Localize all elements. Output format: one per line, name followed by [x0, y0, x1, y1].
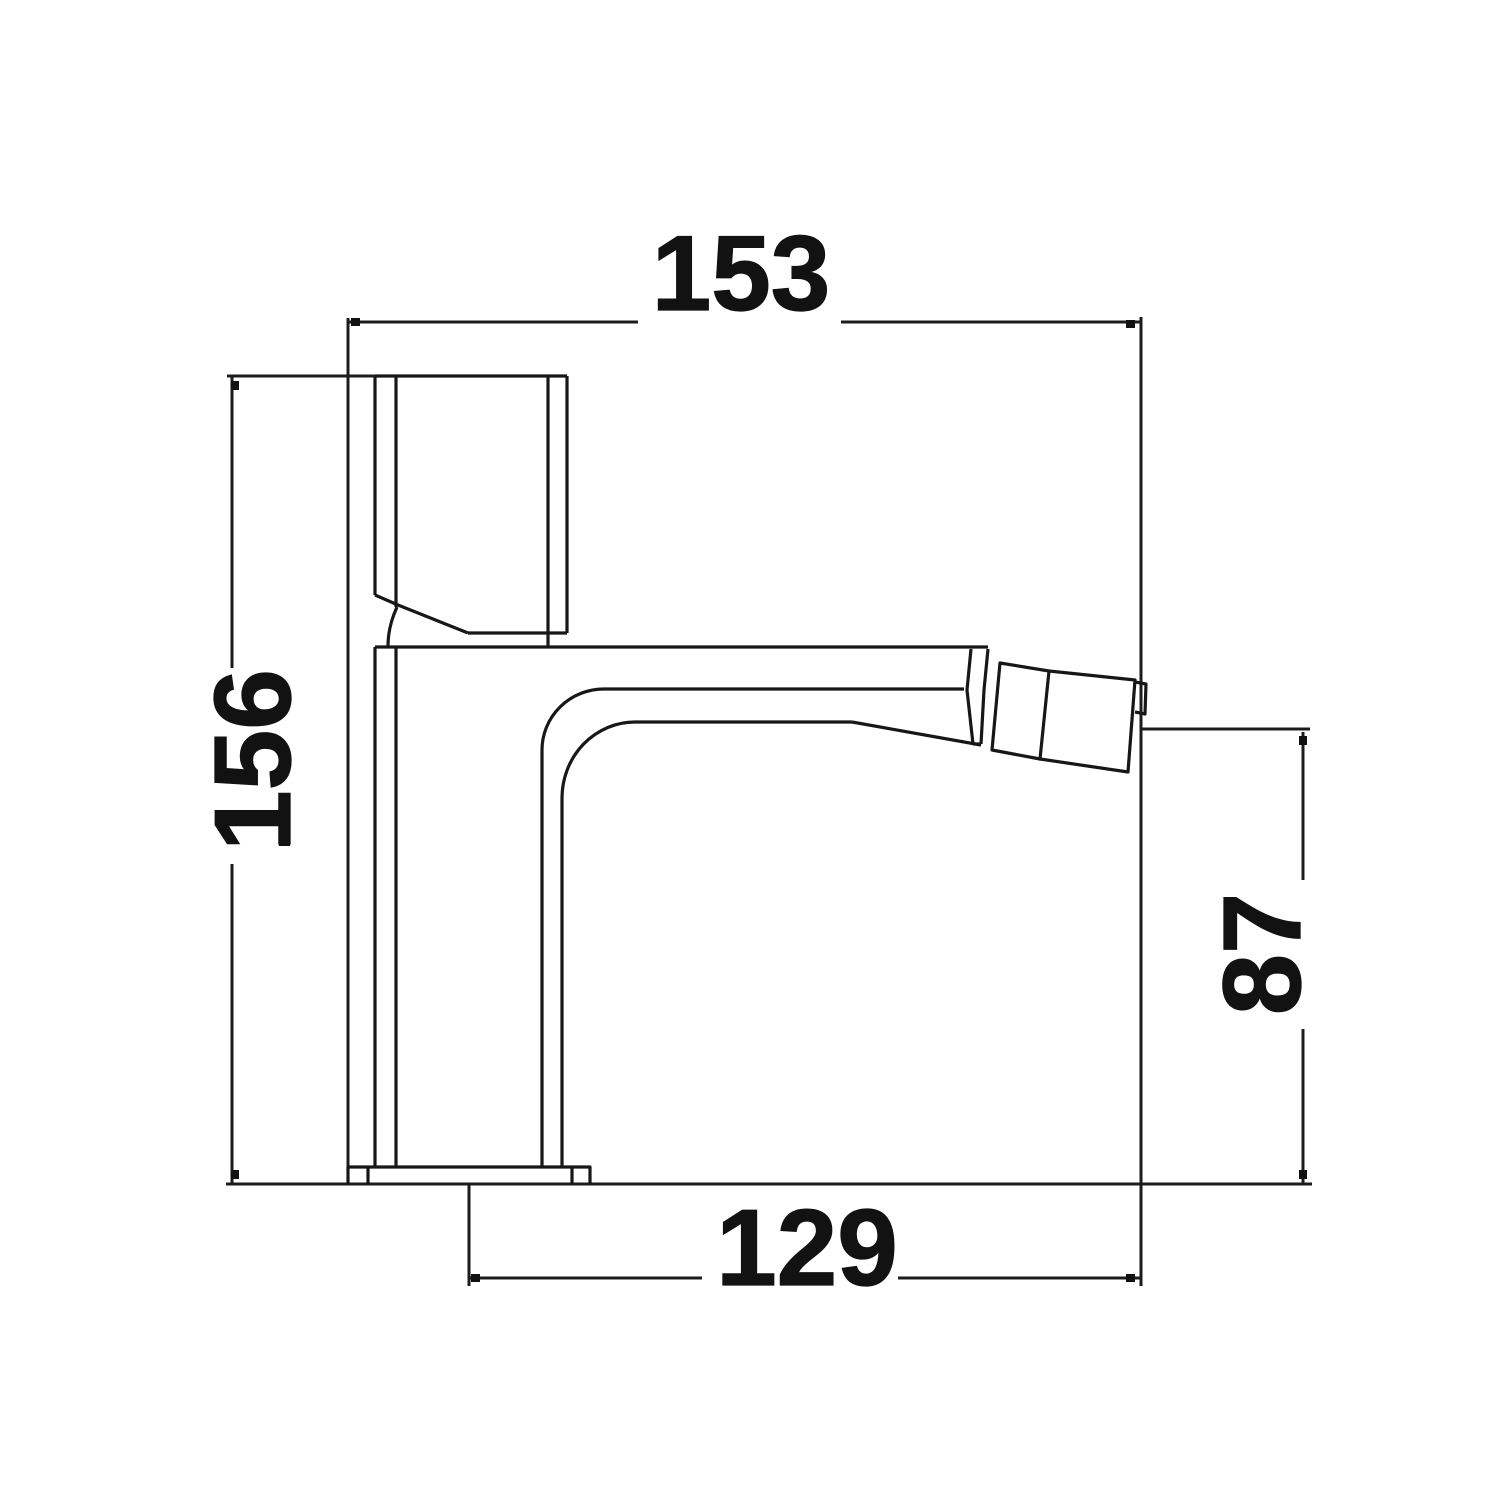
- svg-text:87: 87: [1201, 893, 1324, 1015]
- svg-text:153: 153: [652, 213, 831, 333]
- svg-text:129: 129: [716, 1187, 898, 1309]
- svg-text:156: 156: [192, 669, 314, 851]
